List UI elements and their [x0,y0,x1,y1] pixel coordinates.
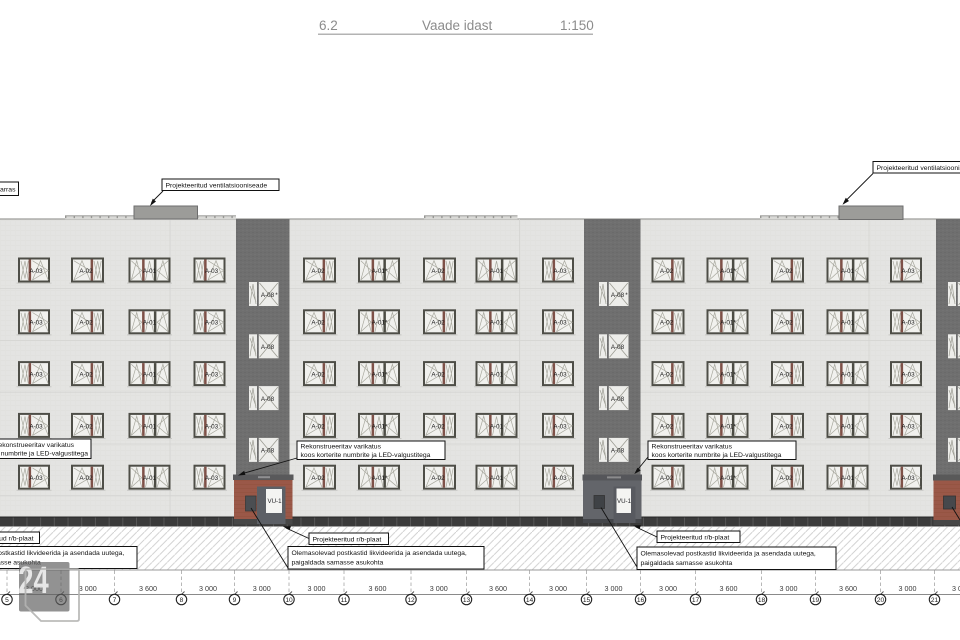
svg-text:3 600: 3 600 [720,584,738,593]
svg-text:17: 17 [692,597,700,604]
svg-text:3 000: 3 000 [308,584,326,593]
svg-text:paigaldada samasse asukohta: paigaldada samasse asukohta [292,560,384,567]
svg-text:VU-1: VU-1 [617,498,632,505]
svg-text:Vaade idast: Vaade idast [422,18,493,33]
svg-text:VU-1: VU-1 [267,498,282,505]
svg-text:Olemasolevad postkastid likvid: Olemasolevad postkastid likvideerida ja … [641,550,816,557]
svg-text:3 000: 3 000 [430,584,448,593]
svg-text:13: 13 [463,597,471,604]
svg-text:3 600: 3 600 [839,584,857,593]
svg-text:18: 18 [758,597,766,604]
svg-text:11: 11 [341,597,348,604]
svg-text:3 000: 3 000 [79,584,97,593]
svg-text:Olemasolevad postkastid likvid: Olemasolevad postkastid likvideerida ja … [292,550,467,557]
svg-text:Projekteeritud r/b-plaat: Projekteeritud r/b-plaat [0,536,34,543]
svg-text:7: 7 [113,597,117,604]
svg-text:19: 19 [812,597,820,604]
svg-text:6.2: 6.2 [319,18,338,33]
svg-text:Projekteeritud r/b-plaat: Projekteeritud r/b-plaat [313,537,382,544]
svg-text:Projekteeritud r/b-plaat: Projekteeritud r/b-plaat [661,535,730,542]
svg-text:12: 12 [407,597,415,604]
svg-text:3 000: 3 000 [605,584,623,593]
svg-text:Rekonstrueeritav varikatus: Rekonstrueeritav varikatus [652,444,733,451]
svg-text:Olemasolevad postkastid likvid: Olemasolevad postkastid likvideerida ja … [0,550,124,557]
svg-text:3 000: 3 000 [253,584,271,593]
svg-text:3 000: 3 000 [659,584,677,593]
svg-text:5: 5 [5,597,9,604]
svg-text:Projekteeritud ventilatsioonis: Projekteeritud ventilatsiooniseade [166,183,268,190]
svg-text:Olemasolev varras: Olemasolev varras [0,187,16,194]
svg-text:16: 16 [637,597,645,604]
svg-text:9: 9 [233,597,237,604]
svg-text:Rekonstrueeritav varikatus: Rekonstrueeritav varikatus [0,442,75,449]
svg-text:3 600: 3 600 [139,584,157,593]
svg-text:3 600: 3 600 [369,584,387,593]
svg-text:1:150: 1:150 [560,18,594,33]
svg-text:3 600: 3 600 [489,584,507,593]
svg-text:koos korterite numbrite ja LED: koos korterite numbrite ja LED-valgustit… [0,451,88,458]
svg-text:Projekteeritud ventilatsioonis: Projekteeritud ventilatsiooniseade [877,165,960,172]
svg-text:3 0: 3 0 [952,584,960,593]
svg-text:15: 15 [583,597,591,604]
svg-text:3 000: 3 000 [199,584,217,593]
svg-text:koos korterite numbrite ja LED: koos korterite numbrite ja LED-valgustit… [652,452,782,459]
svg-text:8: 8 [180,597,184,604]
svg-text:3 000: 3 000 [899,584,917,593]
svg-text:10: 10 [285,597,293,604]
svg-text:24: 24 [18,560,49,602]
svg-text:21: 21 [931,597,939,604]
svg-text:3 000: 3 000 [549,584,567,593]
svg-text:20: 20 [877,597,885,604]
svg-text:paigaldada samasse asukohta: paigaldada samasse asukohta [641,560,733,567]
svg-text:14: 14 [526,597,534,604]
svg-text:Rekonstrueeritav varikatus: Rekonstrueeritav varikatus [301,444,382,451]
svg-text:3 000: 3 000 [780,584,798,593]
svg-text:koos korterite numbrite ja LED: koos korterite numbrite ja LED-valgustit… [301,452,431,459]
